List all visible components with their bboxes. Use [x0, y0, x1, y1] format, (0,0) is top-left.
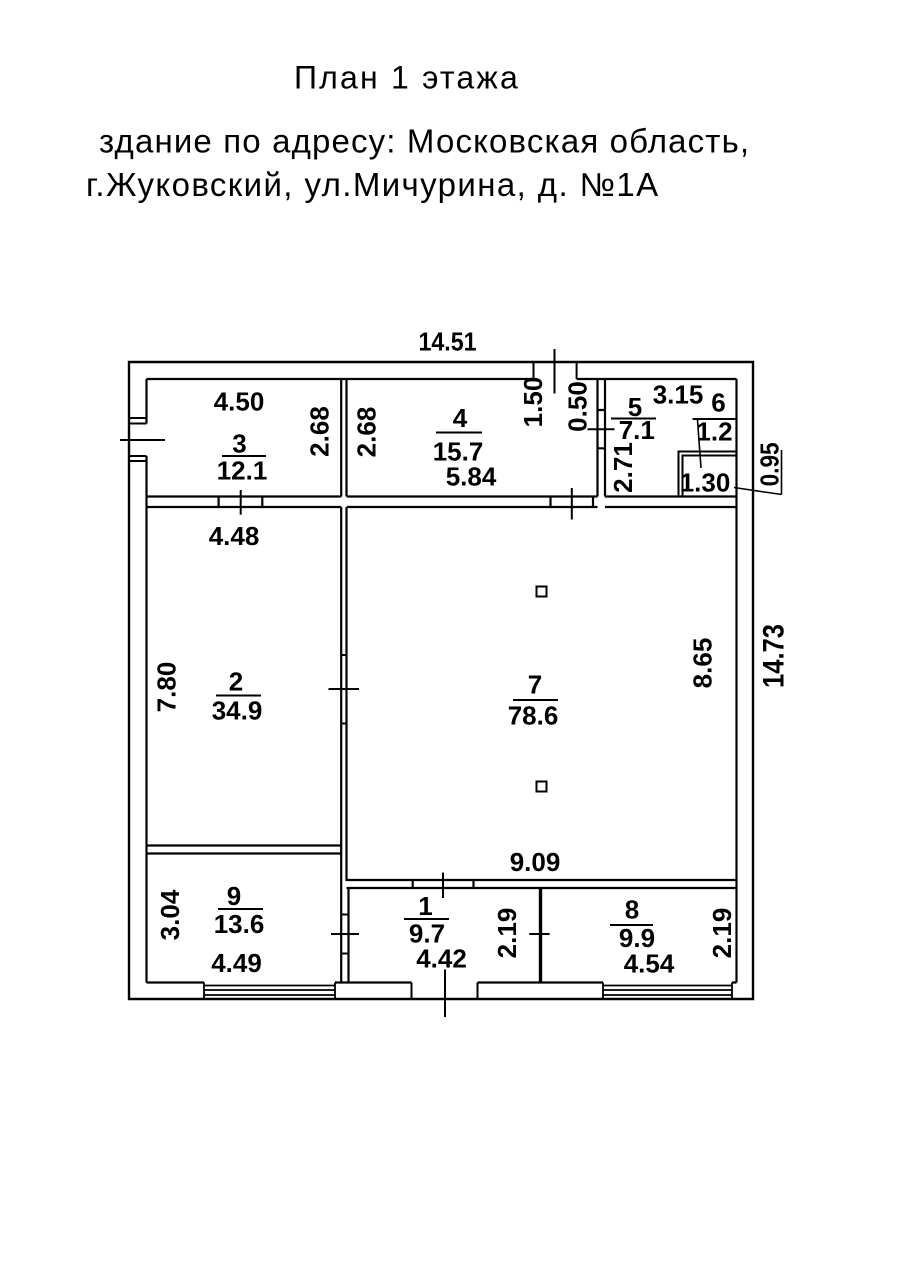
- svg-text:3.04: 3.04: [155, 889, 185, 940]
- svg-text:4.50: 4.50: [214, 387, 265, 417]
- svg-text:4: 4: [453, 403, 468, 433]
- svg-text:4.49: 4.49: [211, 948, 262, 978]
- svg-text:14.73: 14.73: [758, 624, 791, 688]
- svg-text:2: 2: [229, 667, 243, 697]
- svg-text:7.1: 7.1: [619, 415, 655, 445]
- svg-text:2.68: 2.68: [352, 407, 382, 458]
- svg-text:8: 8: [625, 895, 639, 925]
- svg-text:14.51: 14.51: [419, 327, 477, 357]
- svg-text:1.30: 1.30: [680, 468, 731, 498]
- svg-text:0.95: 0.95: [755, 442, 785, 486]
- svg-text:2.71: 2.71: [608, 442, 638, 493]
- svg-text:2.19: 2.19: [492, 908, 522, 959]
- svg-text:5.84: 5.84: [446, 462, 497, 492]
- svg-text:7.80: 7.80: [152, 662, 182, 713]
- svg-text:8.65: 8.65: [688, 638, 718, 689]
- svg-text:4.48: 4.48: [209, 521, 260, 551]
- svg-text:3: 3: [232, 429, 246, 459]
- svg-text:4.42: 4.42: [416, 943, 467, 973]
- svg-text:1.2: 1.2: [696, 417, 732, 447]
- svg-text:34.9: 34.9: [212, 696, 263, 726]
- svg-text:г.Жуковский, ул.Мичурина, д. №: г.Жуковский, ул.Мичурина, д. №1А: [86, 166, 660, 203]
- svg-text:78.6: 78.6: [508, 701, 559, 731]
- svg-text:9.09: 9.09: [510, 847, 561, 877]
- svg-text:6: 6: [711, 388, 725, 418]
- svg-text:3.15: 3.15: [653, 380, 704, 410]
- svg-text:План 1 этажа: План 1 этажа: [294, 60, 520, 96]
- svg-text:12.1: 12.1: [217, 456, 268, 486]
- svg-text:2.68: 2.68: [305, 406, 335, 457]
- svg-text:4.54: 4.54: [624, 949, 675, 979]
- svg-text:1: 1: [418, 891, 432, 921]
- svg-text:здание по адресу: Московская о: здание по адресу: Московская область,: [99, 123, 750, 160]
- svg-text:9: 9: [227, 881, 241, 911]
- svg-text:13.6: 13.6: [214, 909, 265, 939]
- svg-text:7: 7: [528, 670, 542, 700]
- svg-text:2.19: 2.19: [707, 908, 737, 959]
- svg-text:1.50: 1.50: [518, 377, 548, 428]
- svg-text:0.50: 0.50: [562, 381, 592, 432]
